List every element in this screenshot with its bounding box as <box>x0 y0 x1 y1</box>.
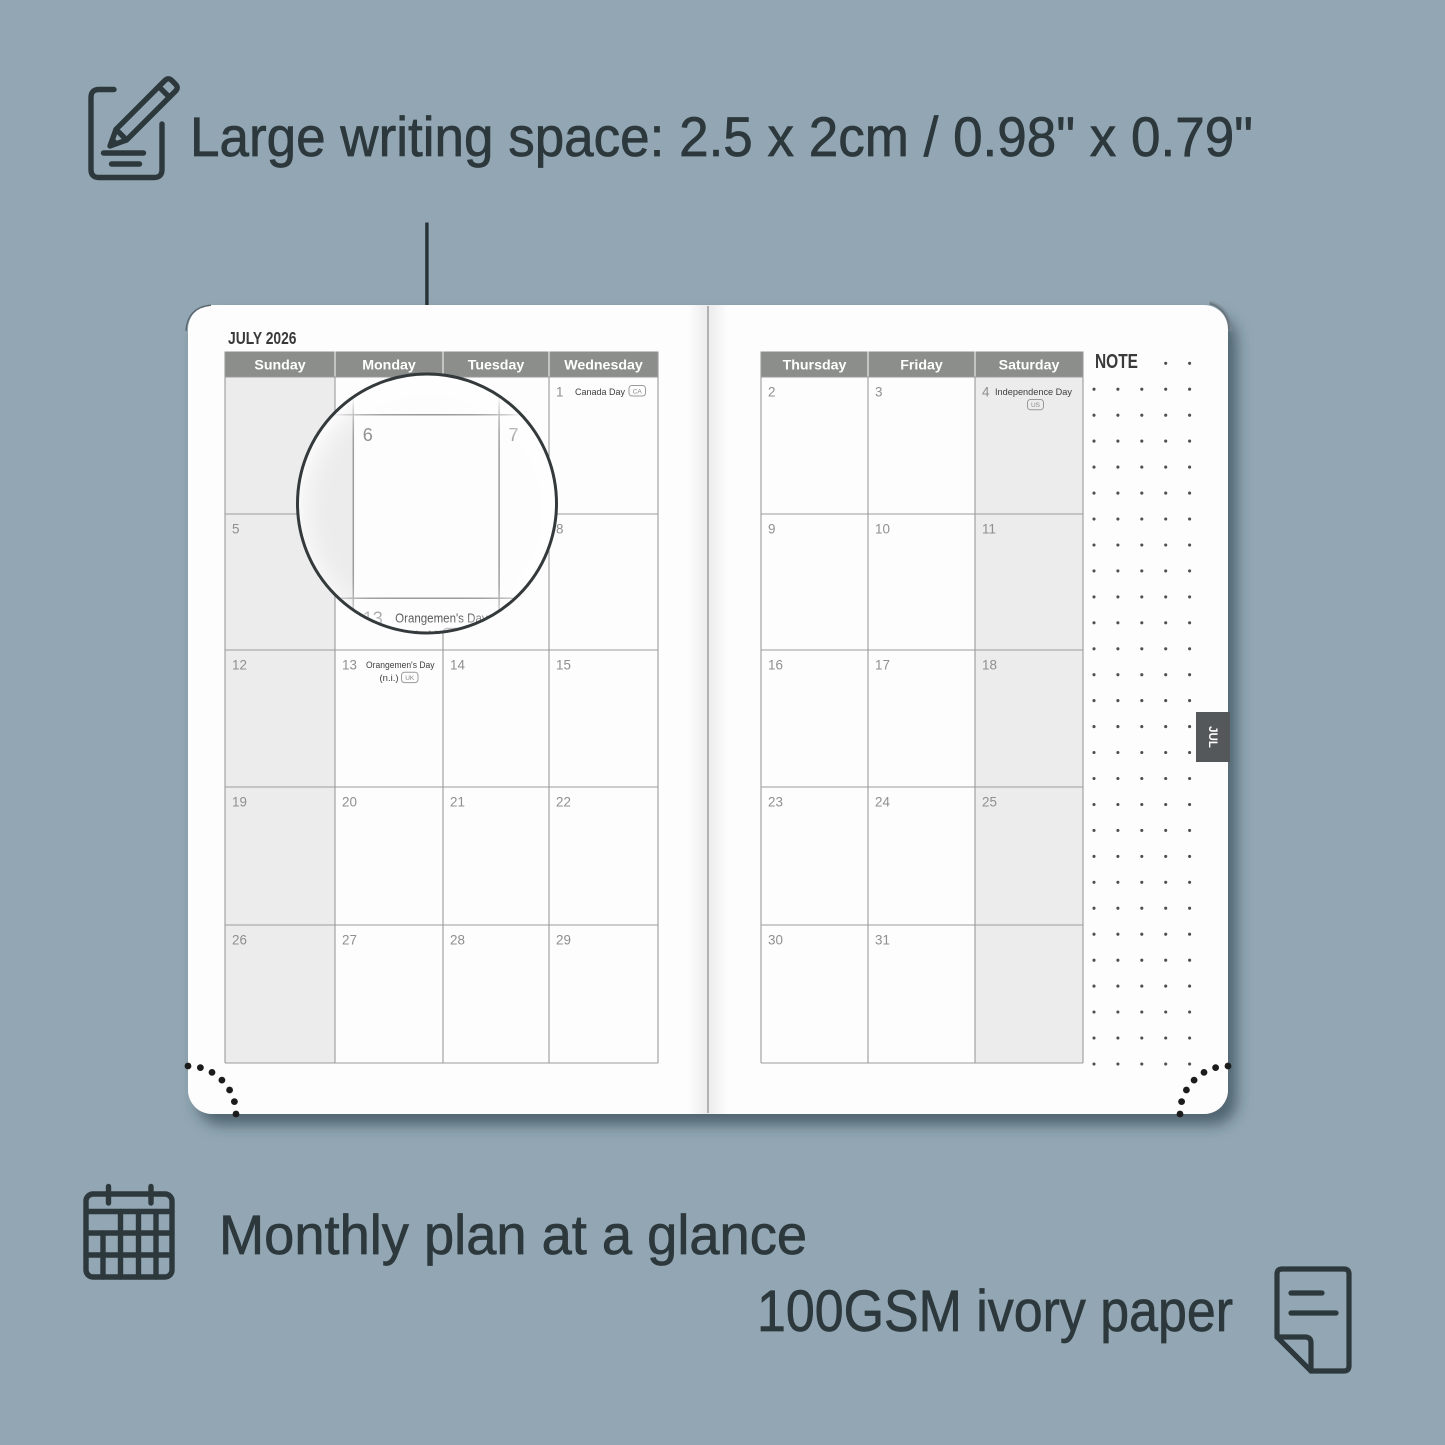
svg-text:19: 19 <box>232 795 247 810</box>
svg-text:11: 11 <box>982 522 996 537</box>
svg-text:100GSM ivory paper: 100GSM ivory paper <box>757 1279 1233 1344</box>
svg-text:Monday: Monday <box>362 357 416 373</box>
svg-text:24: 24 <box>875 795 890 810</box>
svg-text:JUL: JUL <box>1206 726 1218 748</box>
svg-text:29: 29 <box>556 933 571 948</box>
svg-text:14: 14 <box>450 658 465 673</box>
svg-text:Large writing space: 2.5 x 2cm: Large writing space: 2.5 x 2cm / 0.98" x… <box>190 105 1253 168</box>
svg-text:UK: UK <box>405 675 415 682</box>
svg-text:Saturday: Saturday <box>999 357 1060 373</box>
svg-text:Wednesday: Wednesday <box>564 357 643 373</box>
svg-text:5: 5 <box>232 522 239 537</box>
svg-text:4: 4 <box>982 385 990 400</box>
svg-text:23: 23 <box>768 795 783 810</box>
svg-text:31: 31 <box>875 933 890 948</box>
svg-text:Monthly plan at a glance: Monthly plan at a glance <box>219 1203 807 1266</box>
svg-text:30: 30 <box>768 933 783 948</box>
svg-text:(n.i.): (n.i.) <box>380 673 399 684</box>
svg-text:20: 20 <box>342 795 357 810</box>
svg-text:22: 22 <box>556 795 571 810</box>
svg-text:Sunday: Sunday <box>254 357 305 373</box>
svg-text:26: 26 <box>232 933 247 948</box>
svg-text:8: 8 <box>556 522 563 537</box>
svg-text:25: 25 <box>982 795 997 810</box>
svg-text:Independence Day: Independence Day <box>995 387 1072 398</box>
svg-text:Orangemen's Day: Orangemen's Day <box>366 660 435 671</box>
svg-text:17: 17 <box>875 658 890 673</box>
svg-text:18: 18 <box>982 658 997 673</box>
svg-text:16: 16 <box>768 658 783 673</box>
svg-text:US: US <box>1031 402 1041 409</box>
svg-text:1: 1 <box>556 385 563 400</box>
svg-text:2: 2 <box>768 385 775 400</box>
svg-text:Thursday: Thursday <box>783 357 847 373</box>
svg-text:12: 12 <box>232 658 247 673</box>
svg-text:CA: CA <box>633 388 643 395</box>
svg-text:Tuesday: Tuesday <box>468 357 525 373</box>
svg-text:Friday: Friday <box>900 357 943 373</box>
svg-text:9: 9 <box>768 522 775 537</box>
svg-text:28: 28 <box>450 933 465 948</box>
svg-text:21: 21 <box>450 795 465 810</box>
svg-text:Canada Day: Canada Day <box>575 387 625 397</box>
svg-text:13: 13 <box>342 658 357 673</box>
svg-text:JULY 2026: JULY 2026 <box>228 328 297 348</box>
svg-text:15: 15 <box>556 658 571 673</box>
svg-text:3: 3 <box>875 385 882 400</box>
svg-text:NOTE: NOTE <box>1095 351 1138 373</box>
svg-text:27: 27 <box>342 933 357 948</box>
svg-text:10: 10 <box>875 522 890 537</box>
